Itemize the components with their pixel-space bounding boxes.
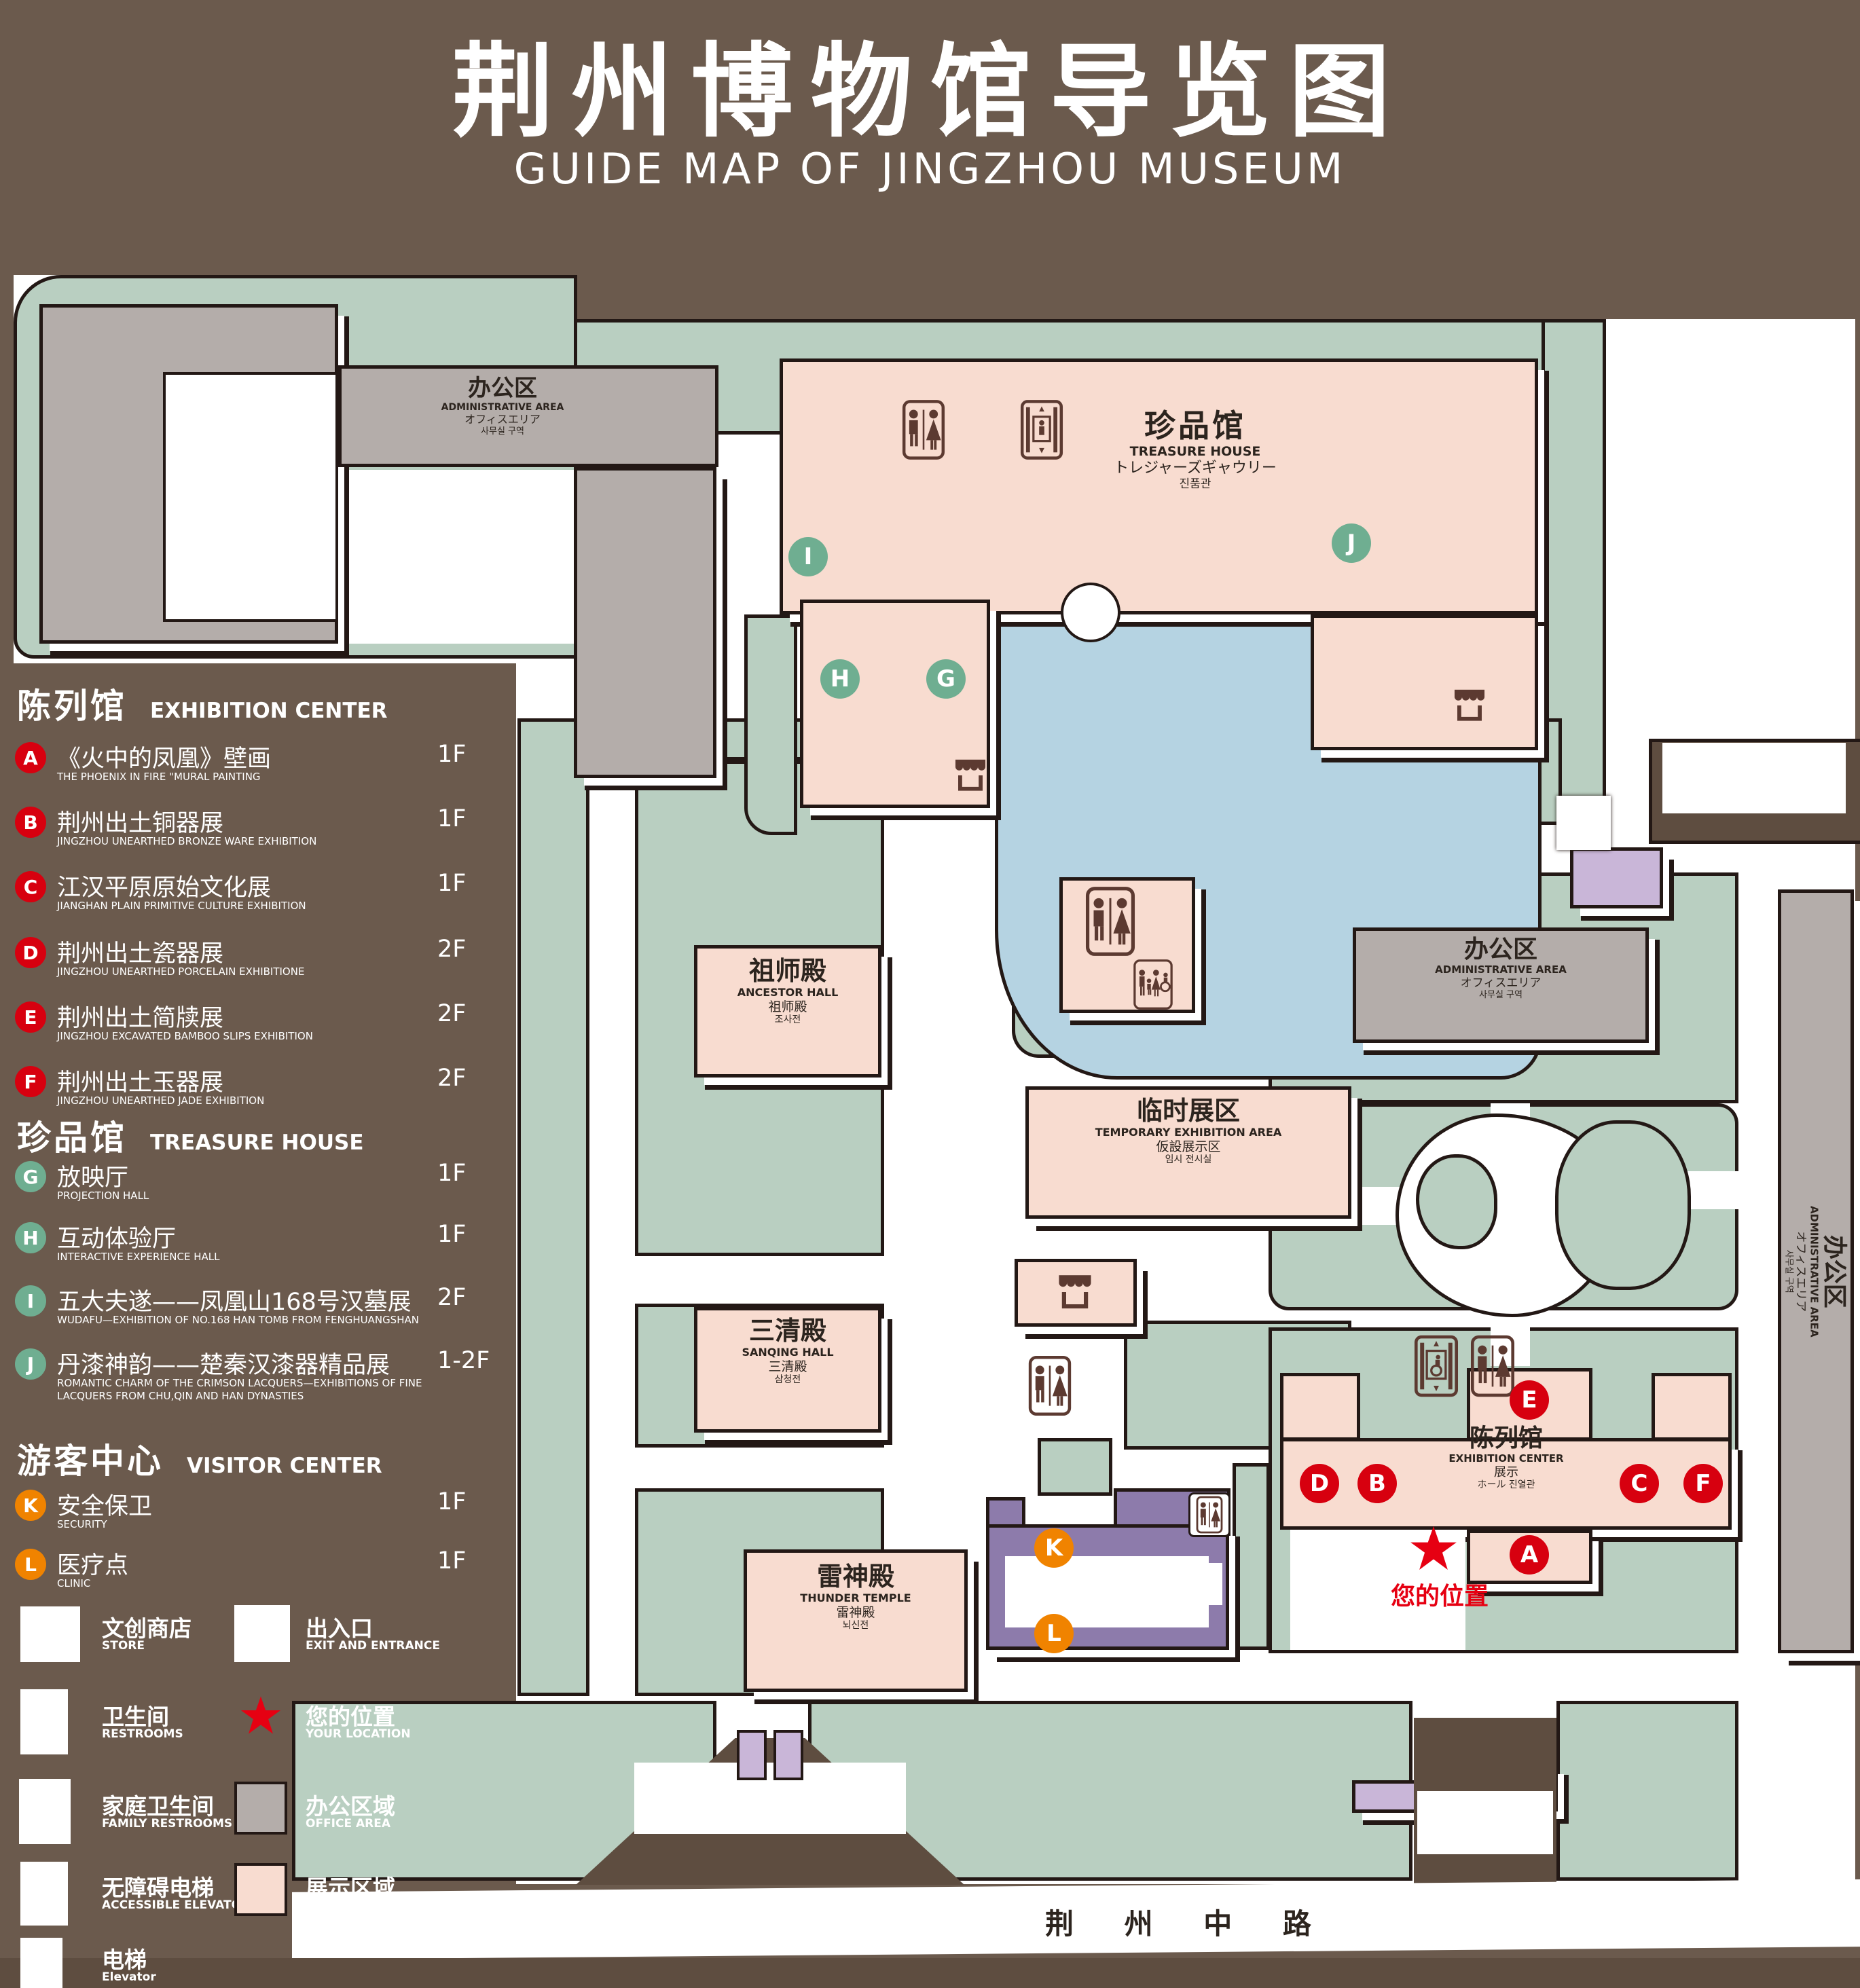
your-location-star: [1409, 1524, 1458, 1573]
thunder-label-zh: 雷神殿: [744, 1562, 968, 1592]
restroom-icon: [20, 1689, 68, 1754]
exit-icon: [1556, 796, 1611, 850]
courtyard: [340, 470, 577, 644]
exit-label-en: EXIT AND ENTRANCE: [1417, 1817, 1553, 1829]
exit-label-ko: 출입구: [1662, 801, 1846, 813]
legend-item-floor: 1F: [437, 870, 466, 897]
garden-island: [1555, 1120, 1691, 1290]
legend-marker: B: [15, 807, 46, 838]
gate-label-en: KAIYUAN TEMPLE GATE: [634, 1793, 906, 1806]
legend-item-floor: 2F: [437, 1065, 466, 1092]
exit-label-zh2: 出入口: [1417, 1828, 1553, 1843]
building-treasure-house-right: [1311, 614, 1538, 750]
garden-island: [1416, 1154, 1497, 1249]
legend-marker: E: [15, 1001, 46, 1033]
admin-label-ja: オフィスエリア: [1794, 1206, 1808, 1338]
treasure-house-label: 珍品馆 TREASURE HOUSE トレジャーズギャウリー 진품관: [1012, 407, 1379, 491]
green-area: [1233, 1463, 1270, 1650]
legend-item-en: JINGZHOU UNEARTHED PORCELAIN EXHIBITIONE: [57, 965, 437, 978]
courtyard: [163, 372, 338, 622]
exhibition-label-jako: ホール 진열관: [1404, 1479, 1608, 1491]
legend-section-exhibition: 陈列馆 EXHIBITION CENTER: [17, 679, 388, 728]
legend-item-en: JINGZHOU EXCAVATED BAMBOO SLIPS EXHIBITI…: [57, 1030, 437, 1043]
thunder-label-ko: 뇌신전: [744, 1620, 968, 1632]
green-area: [517, 718, 589, 1696]
marker-E: E: [1510, 1380, 1549, 1420]
ancestor-label-zh2: 祖师殿: [694, 999, 881, 1014]
accessible-elevator-icon: [1414, 1334, 1459, 1398]
marker-C: C: [1620, 1464, 1659, 1503]
admin-label-zh: 办公区: [1819, 1206, 1848, 1338]
marker-J: J: [1332, 523, 1371, 563]
admin-label-ko: 사무실 구역: [1783, 1206, 1793, 1338]
legend-item-floor: 2F: [437, 936, 466, 963]
legend-marker: H: [15, 1222, 46, 1253]
marker-I: I: [788, 537, 828, 576]
legend-section-title-zh: 珍品馆: [17, 1111, 127, 1160]
sanqing-label-ko: 삼청전: [694, 1374, 881, 1386]
admin-label-zh: 办公区: [1355, 936, 1647, 964]
restroom-icon: [1194, 1496, 1225, 1534]
building-exhibition-center: [1652, 1373, 1732, 1441]
store-icon: [1054, 1268, 1096, 1316]
gate-label-ko: 산문을 열다: [634, 1822, 906, 1834]
legend-section-title-en: TREASURE HOUSE: [150, 1130, 364, 1155]
ancestor-label-zh: 祖师殿: [694, 956, 881, 987]
legend-item-en: ROMANTIC CHARM OF THE CRIMSON LACQUERS—E…: [57, 1377, 437, 1403]
legend-item-en: JIANGHAN PLAIN PRIMITIVE CULTURE EXHIBIT…: [57, 900, 437, 913]
exit-top-label: 出入口 EXIT AND ENTRANCE 出入口 출입구: [1662, 743, 1846, 813]
visitor-label-en: VISITOR CENTER: [1005, 1587, 1209, 1600]
guide-map-page: 荆州博物馆导览图 GUIDE MAP OF JINGZHOU MUSEUM 办公…: [0, 0, 1860, 1988]
legend-item-en: PROJECTION HALL: [57, 1190, 437, 1202]
legend-item-en: WUDAFU—EXHIBITION OF NO.168 HAN TOMB FRO…: [57, 1314, 437, 1327]
gate-label-zh: 开元观山门: [634, 1763, 906, 1793]
legend-item-floor: 1F: [437, 1488, 466, 1515]
legend-marker: J: [15, 1348, 46, 1380]
admin-far-right-label: 办公区 ADMINISTRATIVE AREA オフィスエリア 사무실 구역: [1778, 889, 1854, 1653]
building-small: [1570, 847, 1663, 908]
legend-item-floor: 1F: [437, 805, 466, 832]
marker-A: A: [1510, 1535, 1549, 1575]
exhibition-label-zh: 陈列馆: [1404, 1424, 1608, 1453]
admin-label-en: ADMINISTRATIVE AREA: [380, 402, 625, 413]
legend-item-zh: 江汉平原原始文化展: [57, 868, 424, 903]
display-area-swatch: [234, 1863, 287, 1916]
legend-item-en: THE PHOENIX IN FIRE "MURAL PAINTING: [57, 771, 437, 784]
treasure-label-en: TREASURE HOUSE: [1012, 444, 1379, 459]
legend-section-treasure: 珍品馆 TREASURE HOUSE: [17, 1111, 364, 1160]
exit-label-zh: 出入口: [1417, 1791, 1553, 1817]
store-icon: [20, 1606, 80, 1662]
admin-label-ja: オフィスエリア: [1355, 976, 1647, 990]
elevator-icon: [20, 1938, 62, 1988]
legend-marker: F: [15, 1066, 46, 1097]
exit-label-en: EXIT AND ENTRANCE: [1662, 771, 1846, 785]
family-restroom-icon: [1129, 959, 1178, 1010]
your-location-label: 您的位置: [1365, 1577, 1514, 1612]
legend-marker: L: [15, 1549, 46, 1580]
legend-item-en: JINGZHOU UNEARTHED JADE EXHIBITION: [57, 1094, 437, 1107]
marker-K: K: [1034, 1528, 1074, 1568]
sanqing-label-en: SANQING HALL: [694, 1346, 881, 1359]
store-icon: [1450, 682, 1489, 729]
exhibition-label-en: EXHIBITION CENTER: [1404, 1453, 1608, 1465]
family-restroom-icon: [19, 1779, 71, 1844]
exit-label-ko: 출입구: [1417, 1843, 1553, 1855]
legend-item-zh: 安全保卫: [57, 1487, 424, 1522]
admin-label-ko: 사무실 구역: [380, 426, 625, 437]
thunder-label-en: THUNDER TEMPLE: [744, 1592, 968, 1605]
ancestor-hall-label: 祖师殿 ANCESTOR HALL 祖师殿 조사전: [694, 956, 881, 1026]
admin-label-ko: 사무실 구역: [1355, 990, 1647, 1000]
visitor-label-ja: ビジターセンター: [1005, 1600, 1209, 1615]
building-admin-topleft: [574, 467, 716, 778]
kaiyuan-gate-label: 开元观山门 KAIYUAN TEMPLE GATE 開元観山門 산문을 열다: [634, 1763, 906, 1834]
green-area: [1556, 1701, 1738, 1881]
legend-section-title-zh: 游客中心: [17, 1434, 164, 1483]
road-label: 荆 州 中 路: [978, 1901, 1399, 1943]
sanqing-label-zh2: 三清殿: [694, 1359, 881, 1374]
ancestor-label-en: ANCESTOR HALL: [694, 987, 881, 999]
legend-item-floor: 1-2F: [437, 1347, 490, 1374]
restroom-icon: [1083, 886, 1137, 957]
sanqing-label-zh: 三清殿: [694, 1316, 881, 1346]
marker-G: G: [926, 659, 966, 699]
temporary-exhibition-label: 临时展区 TEMPORARY EXHIBITION AREA 仮設展示区 임시 …: [1025, 1096, 1351, 1166]
legend-item-floor: 1F: [437, 1160, 466, 1187]
legend-item-zh: 荆州出土铜器展: [57, 804, 424, 839]
legend-marker: A: [15, 742, 46, 773]
green-area: [744, 614, 797, 835]
gate-pillar: [737, 1730, 767, 1780]
location-star-icon: [239, 1695, 282, 1737]
admin-label-zh: 办公区: [380, 375, 625, 402]
treasure-label-zh: 珍品馆: [1012, 407, 1379, 444]
legend-section-visitor: 游客中心 VISITOR CENTER: [17, 1434, 382, 1483]
page-title: 荆州博物馆导览图: [0, 10, 1860, 157]
legend-section-title-en: VISITOR CENTER: [187, 1454, 382, 1478]
legend-item-zh: 荆州出土玉器展: [57, 1063, 424, 1098]
legend-marker: G: [15, 1161, 46, 1192]
road-lower-strip: [0, 1958, 1860, 1988]
legend-section-title-en: EXHIBITION CENTER: [150, 699, 388, 723]
thunder-temple-label: 雷神殿 THUNDER TEMPLE 雷神殿 뇌신전: [744, 1562, 968, 1632]
office-area-swatch: [234, 1782, 287, 1835]
gate-label-ja: 開元観山門: [634, 1806, 906, 1822]
marker-B: B: [1357, 1464, 1397, 1503]
treasure-label-ja: トレジャーズギャウリー: [1012, 460, 1379, 477]
visitor-center-label: 游客中心 VISITOR CENTER ビジターセンター 관광객 센터: [1005, 1556, 1209, 1627]
exit-icon: [234, 1605, 290, 1662]
legend-item-en: INTERACTIVE EXPERIENCE HALL: [57, 1251, 437, 1264]
building-exhibition-center: [1280, 1373, 1360, 1441]
exit-label-zh2: 出入口: [1662, 786, 1846, 802]
admin-topleft-label: 办公区 ADMINISTRATIVE AREA オフィスエリア 사무실 구역: [380, 375, 625, 437]
legend-item-floor: 2F: [437, 1000, 466, 1027]
admin-label-ja: オフィスエリア: [380, 413, 625, 426]
exit-label-zh: 出入口: [1662, 743, 1846, 771]
legend-item-en: CLINIC: [57, 1577, 437, 1590]
legend-section-title-zh: 陈列馆: [17, 679, 127, 728]
legend-item-zh: 《火中的凤凰》壁画: [57, 739, 424, 774]
treasure-label-ko: 진품관: [1012, 477, 1379, 491]
restroom-icon: [902, 397, 945, 462]
marker-D: D: [1300, 1464, 1339, 1503]
legend-item-floor: 2F: [437, 1284, 466, 1311]
exhibition-center-label: 陈列馆 EXHIBITION CENTER 展示 ホール 진열관: [1404, 1424, 1608, 1491]
legend-marker: K: [15, 1490, 46, 1521]
legend-item-zh: 医疗点: [57, 1546, 424, 1581]
store-icon: [951, 752, 990, 798]
temp-label-zh: 临时展区: [1025, 1096, 1351, 1126]
marker-F: F: [1683, 1464, 1723, 1503]
legend-item-floor: 1F: [437, 741, 466, 768]
legend-item-zh: 荆州出土简牍展: [57, 999, 424, 1033]
legend-marker: I: [15, 1285, 46, 1317]
page-subtitle: GUIDE MAP OF JINGZHOU MUSEUM: [0, 144, 1860, 194]
restroom-icon: [1470, 1334, 1515, 1398]
accessible-elevator-icon: [20, 1862, 68, 1926]
legend-item-zh: 荆州出土瓷器展: [57, 934, 424, 969]
legend-marker: C: [15, 871, 46, 902]
arch: [1061, 583, 1120, 642]
ancestor-label-ko: 조사전: [694, 1014, 881, 1026]
visitor-label-zh: 游客中心: [1005, 1556, 1209, 1587]
admin-label-en: ADMINISTRATIVE AREA: [1355, 964, 1647, 976]
temp-label-ja: 仮設展示区: [1025, 1139, 1351, 1154]
thunder-label-zh2: 雷神殿: [744, 1605, 968, 1620]
legend-item-zh: 丹漆神韵——楚秦汉漆器精品展: [57, 1346, 424, 1380]
legend-item-en: SECURITY: [57, 1518, 437, 1531]
legend-item-en: JINGZHOU UNEARTHED BRONZE WARE EXHIBITIO…: [57, 835, 437, 848]
marker-L: L: [1034, 1614, 1074, 1653]
legend-item-zh: 放映厅: [57, 1158, 424, 1193]
exit-bottom-label: 出入口 EXIT AND ENTRANCE 出入口 출입구: [1417, 1791, 1553, 1854]
marker-H: H: [820, 659, 860, 699]
legend-item-zh: 互动体验厅: [57, 1219, 424, 1254]
exhibition-label-zh2: 展示: [1404, 1465, 1608, 1479]
admin-label-en: ADMINISTRATIVE AREA: [1808, 1206, 1820, 1338]
gate-pillar: [773, 1730, 803, 1780]
temp-label-en: TEMPORARY EXHIBITION AREA: [1025, 1126, 1351, 1139]
sanqing-hall-label: 三清殿 SANQING HALL 三清殿 삼청전: [694, 1316, 881, 1386]
legend-item-floor: 1F: [437, 1547, 466, 1575]
legend-marker: D: [15, 937, 46, 968]
green-area: [1038, 1438, 1112, 1496]
legend-item-floor: 1F: [437, 1221, 466, 1248]
temp-label-ko: 임시 전시실: [1025, 1154, 1351, 1166]
legend-item-zh: 五大夫遂——凤凰山168号汉墓展: [57, 1283, 424, 1317]
store-icon: [1180, 1563, 1222, 1605]
restroom-icon: [1027, 1355, 1073, 1416]
elevator-icon: [1020, 397, 1063, 462]
admin-right-label: 办公区 ADMINISTRATIVE AREA オフィスエリア 사무실 구역: [1355, 936, 1647, 1001]
